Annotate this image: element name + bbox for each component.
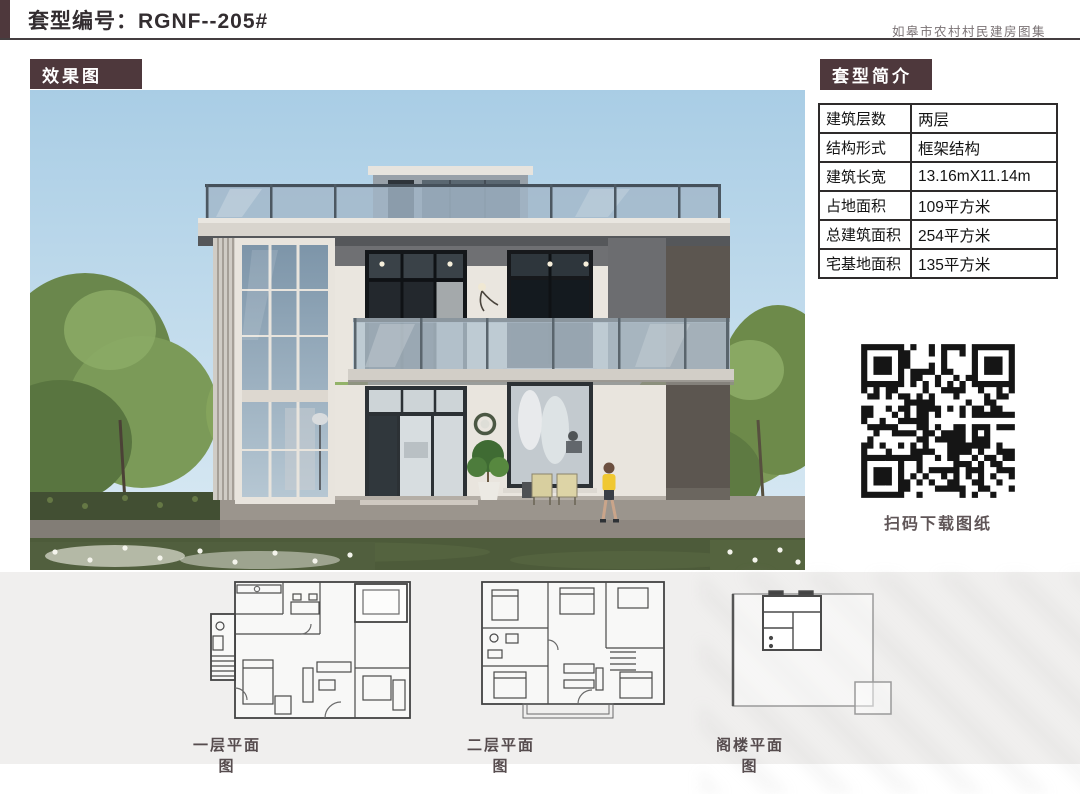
- entry-step: [360, 500, 478, 505]
- row-value: 13.16mX11.14m: [911, 162, 1057, 191]
- section-label-intro: 套型简介: [820, 59, 932, 90]
- flower-bed-right: [710, 540, 805, 570]
- table-row: 建筑长宽13.16mX11.14m: [819, 162, 1057, 191]
- plan-caption-second: 二层平面图: [459, 734, 543, 776]
- house-rendering-image: [30, 90, 805, 570]
- row-label: 总建筑面积: [819, 220, 911, 249]
- floor-plan-attic: [705, 584, 907, 726]
- glass-tower: [235, 238, 335, 504]
- row-value: 135平方米: [911, 249, 1057, 278]
- page-title: 套型编号：RGNF--205#: [28, 5, 268, 35]
- table-row: 占地面积109平方米: [819, 191, 1057, 220]
- house-rendering-art: [30, 90, 805, 570]
- row-value: 两层: [911, 104, 1057, 133]
- floor-plan-second: [468, 576, 694, 728]
- floor-plan-first: [205, 576, 431, 728]
- qr-caption: 扫码下载图纸: [855, 510, 1021, 534]
- section-label-rendering: 效果图: [30, 59, 142, 89]
- intro-table: 建筑层数两层 结构形式框架结构 建筑长宽13.16mX11.14m 占地面积10…: [818, 103, 1058, 279]
- table-row: 总建筑面积254平方米: [819, 220, 1057, 249]
- plan-caption-first: 一层平面图: [186, 734, 268, 776]
- row-label: 宅基地面积: [819, 249, 911, 278]
- table-row: 结构形式框架结构: [819, 133, 1057, 162]
- flower-bed-left: [30, 542, 375, 570]
- entrance-door: [365, 386, 467, 498]
- header-accent-bar: [0, 0, 10, 38]
- table-row: 宅基地面积135平方米: [819, 249, 1057, 278]
- row-value: 109平方米: [911, 191, 1057, 220]
- balcony-railing: [348, 318, 734, 385]
- row-value: 254平方米: [911, 220, 1057, 249]
- louver-fins: [213, 238, 237, 500]
- row-label: 结构形式: [819, 133, 911, 162]
- row-value: 框架结构: [911, 133, 1057, 162]
- row-label: 建筑层数: [819, 104, 911, 133]
- plan-caption-attic: 阁楼平面图: [708, 734, 792, 776]
- row-label: 建筑长宽: [819, 162, 911, 191]
- row-label: 占地面积: [819, 191, 911, 220]
- header-divider: [0, 38, 1080, 40]
- table-row: 建筑层数两层: [819, 104, 1057, 133]
- qr-code: [855, 338, 1021, 504]
